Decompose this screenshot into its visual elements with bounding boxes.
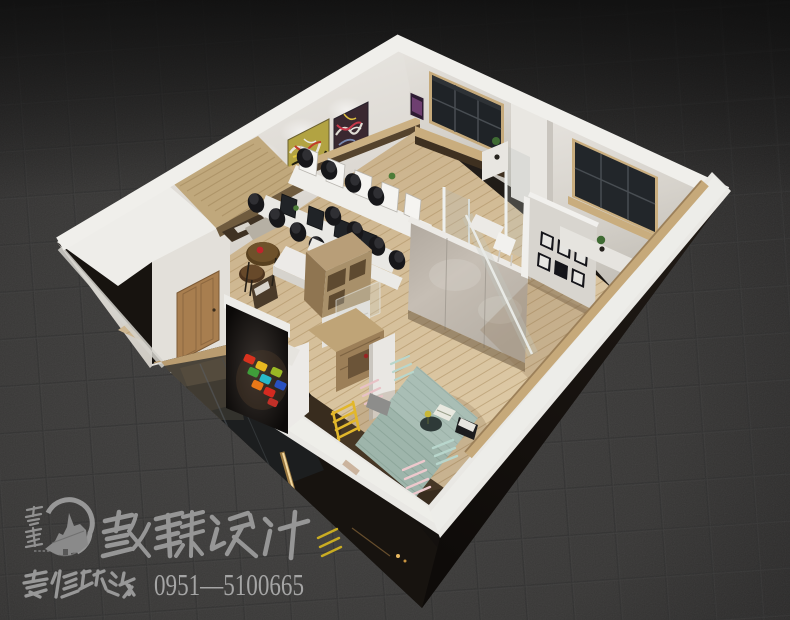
svg-text:0951—5100665: 0951—5100665 xyxy=(154,567,304,602)
